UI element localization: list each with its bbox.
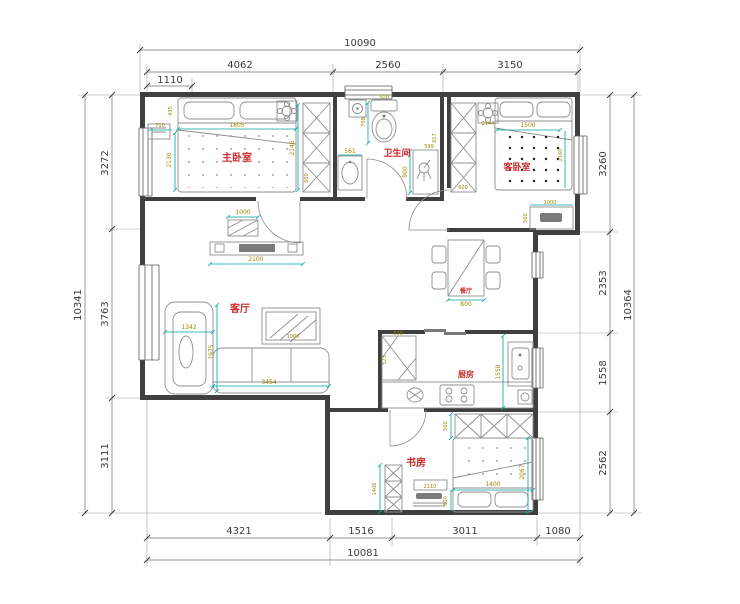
label-master-bedroom: 主卧室 [222, 151, 252, 164]
guest-bed [495, 98, 572, 190]
label-study: 书房 [406, 456, 426, 469]
dim-master-bed-width: 1805 [229, 122, 244, 129]
door-study [390, 410, 426, 446]
floor-plan-canvas: 10090 4062 2560 3150 1110 4321 1516 3011… [0, 0, 740, 600]
dim-toilet-width: 500 [379, 95, 389, 101]
study-wardrobe [455, 414, 533, 438]
dim-top-seg-3: 3150 [497, 60, 522, 71]
label-kitchen: 厨房 [458, 369, 474, 379]
dim-guest-wardrobe: 600 [458, 185, 468, 191]
dim-bottom-seg-3: 3011 [452, 526, 477, 537]
dim-study-bed-length: 2067 [519, 464, 526, 479]
dim-kitchen-top: 600 [393, 331, 403, 337]
dim-master-wardrobe: 600 [304, 173, 310, 183]
dim-shower-b: 599 [424, 144, 434, 150]
dim-guest-dresser: 1000 [544, 200, 557, 206]
dim-study-desk: 2110 [424, 484, 437, 490]
window-study-right [532, 438, 543, 500]
bathroom-vanity [338, 156, 362, 190]
dim-top-seg-1: 4062 [227, 60, 252, 71]
dim-master-console: 1000 [235, 209, 250, 216]
door-bathroom [367, 159, 407, 199]
door-kitchen-sliding-2 [444, 332, 466, 335]
dim-right-total: 10364 [623, 289, 634, 321]
dim-left-seg-2: 3763 [100, 301, 111, 326]
dim-master-bed-left: 2130 [166, 152, 173, 167]
shower [413, 150, 438, 194]
dim-tv-console: 2100 [248, 256, 263, 263]
dim-study-wardrobe: 500 [443, 421, 449, 431]
dim-study-bed-width: 1400 [485, 481, 500, 488]
dim-bottom-seg-4: 1080 [545, 526, 570, 537]
dim-left-total: 10341 [73, 289, 84, 321]
door-master [258, 201, 300, 243]
dim-top-sub: 1110 [157, 75, 182, 86]
dim-sofa-depth: 1975 [208, 344, 215, 359]
dim-coffee-table: 1000 [287, 334, 300, 340]
dim-top-seg-2: 2560 [375, 60, 400, 71]
window-dining-right [532, 252, 543, 278]
dim-guest-bed-length: 2160 [558, 149, 564, 162]
dim-left-seg-1: 3272 [100, 150, 111, 175]
dim-sofa-width: 3454 [261, 379, 276, 386]
sofa [165, 302, 329, 394]
label-dining-room: 餐厅 [459, 287, 472, 295]
window-living-bay [139, 265, 159, 360]
furniture [148, 98, 573, 512]
shoe-cabinet [228, 220, 258, 236]
dim-bottom-total: 10081 [347, 548, 379, 559]
dim-chaise: 1342 [181, 324, 196, 331]
dim-guest-bed-width: 1500 [520, 122, 535, 129]
dim-shower-a: 617 [432, 133, 438, 143]
floor-plan-page: 10090 4062 2560 3150 1110 4321 1516 3011… [0, 0, 740, 600]
toilet [371, 100, 397, 142]
dim-guest-side-table: 2144 [482, 121, 495, 127]
dim-right-seg-4: 2562 [598, 450, 609, 475]
window-guest-right [574, 136, 587, 194]
tv-console [210, 242, 303, 255]
dim-master-corner: 435 [168, 106, 174, 116]
master-bed [178, 98, 296, 192]
dim-guest-dresser-depth: 500 [523, 213, 529, 223]
dim-master-nightstand: 710 [155, 123, 165, 129]
dim-right-seg-1: 3260 [598, 151, 609, 176]
window-kitchen-right [532, 348, 543, 388]
washing-machine [349, 100, 366, 117]
label-living-room: 客厅 [229, 302, 250, 315]
label-bathroom: 卫生间 [383, 147, 410, 159]
dim-bottom-seg-2: 1516 [348, 526, 373, 537]
dim-kitchen-height: 1558 [495, 364, 502, 379]
dim-top-total: 10090 [344, 38, 376, 49]
dim-dining-table: 800 [460, 301, 472, 308]
dim-right-seg-3: 1558 [598, 360, 609, 385]
doors [258, 159, 466, 446]
dim-kitchen-left: 523 [382, 355, 388, 365]
dim-master-bed-right: 2146 [289, 140, 296, 155]
window-master-left [139, 128, 152, 196]
dim-study-bed-side: 600 [443, 496, 449, 506]
dim-left-seg-3: 3111 [100, 443, 111, 468]
study-bookcase [385, 465, 402, 512]
dim-vanity: 561 [344, 148, 356, 155]
dim-bottom-seg-1: 4321 [226, 526, 251, 537]
dim-study-bookcase: 1406 [372, 483, 378, 496]
guest-dresser [530, 207, 573, 229]
dim-shower-depth: 900 [402, 166, 409, 178]
guest-wardrobe [451, 103, 476, 192]
door-kitchen-sliding [424, 329, 446, 332]
label-guest-bedroom: 客卧室 [502, 161, 530, 173]
dim-right-seg-2: 2353 [598, 270, 609, 295]
dim-toilet-depth: 708 [361, 117, 367, 127]
